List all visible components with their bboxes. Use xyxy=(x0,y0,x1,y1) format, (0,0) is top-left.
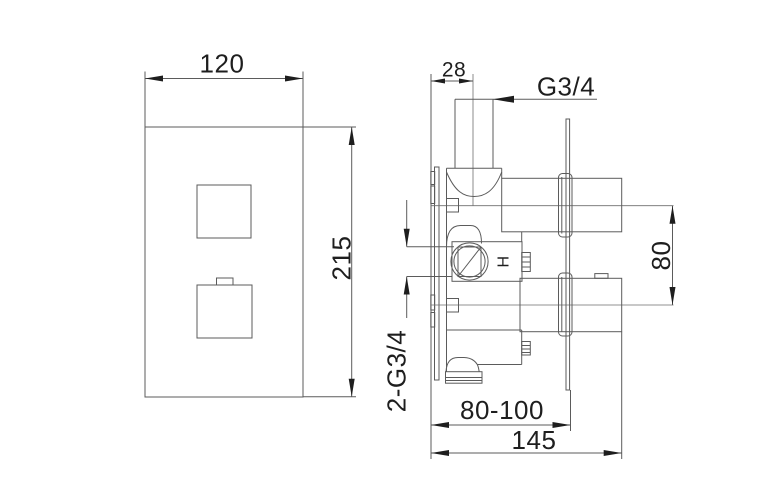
arrow-left xyxy=(431,450,449,456)
install-depth-label: 80-100 xyxy=(460,395,544,425)
faceplate-outline xyxy=(145,127,303,397)
inlet-thread-label: 2-G3/4 xyxy=(382,330,412,413)
leader-arrow xyxy=(493,96,514,103)
port-spacing-label: 80 xyxy=(646,241,676,271)
inlet-stub-top xyxy=(447,199,459,213)
outlet-thread-label: G3/4 xyxy=(537,72,595,102)
arrow-down xyxy=(670,287,676,305)
escutcheon-plate xyxy=(559,119,573,390)
front-view: 120 215 xyxy=(145,49,357,398)
bottom-elbow xyxy=(446,358,479,372)
arrow-up xyxy=(404,277,410,295)
arrow-down xyxy=(404,229,410,247)
bottom-port-tab xyxy=(595,274,608,279)
arrow-up xyxy=(670,206,676,224)
thermostatic-cartridge xyxy=(451,243,488,280)
top-handle-square xyxy=(197,185,251,238)
riser-pipe xyxy=(455,99,493,168)
dimension-pipe-offset: 28 xyxy=(431,59,473,84)
arrow-left xyxy=(431,422,449,428)
mounting-bracket xyxy=(431,167,439,380)
arrow-left xyxy=(145,76,163,82)
shower-valve-dimension-drawing: 120 215 xyxy=(0,0,765,498)
dimension-port-spacing: 80 xyxy=(646,206,676,305)
bottom-handle-tab xyxy=(217,278,234,285)
arrow-down xyxy=(349,379,355,397)
bottom-handle-square xyxy=(197,285,252,338)
dimension-inlet-thread: 2-G3/4 xyxy=(382,200,455,412)
side-view: H xyxy=(382,59,677,460)
technical-drawing-canvas: 120 215 xyxy=(0,0,765,498)
total-depth-label: 145 xyxy=(512,425,557,455)
arrow-up xyxy=(349,127,355,145)
dimension-height: 215 xyxy=(303,127,357,397)
height-label: 215 xyxy=(327,236,357,281)
dimension-width: 120 xyxy=(145,49,303,128)
leader-outlet-thread: G3/4 xyxy=(493,72,597,103)
width-label: 120 xyxy=(200,49,245,79)
cartridge-housing: H xyxy=(452,232,530,281)
arrow-right xyxy=(604,450,622,456)
top-elbow xyxy=(447,168,502,196)
arrow-right xyxy=(285,76,303,82)
hot-side-marker: H xyxy=(496,255,513,267)
pipe-offset-label: 28 xyxy=(442,59,466,82)
lower-body xyxy=(446,330,531,383)
